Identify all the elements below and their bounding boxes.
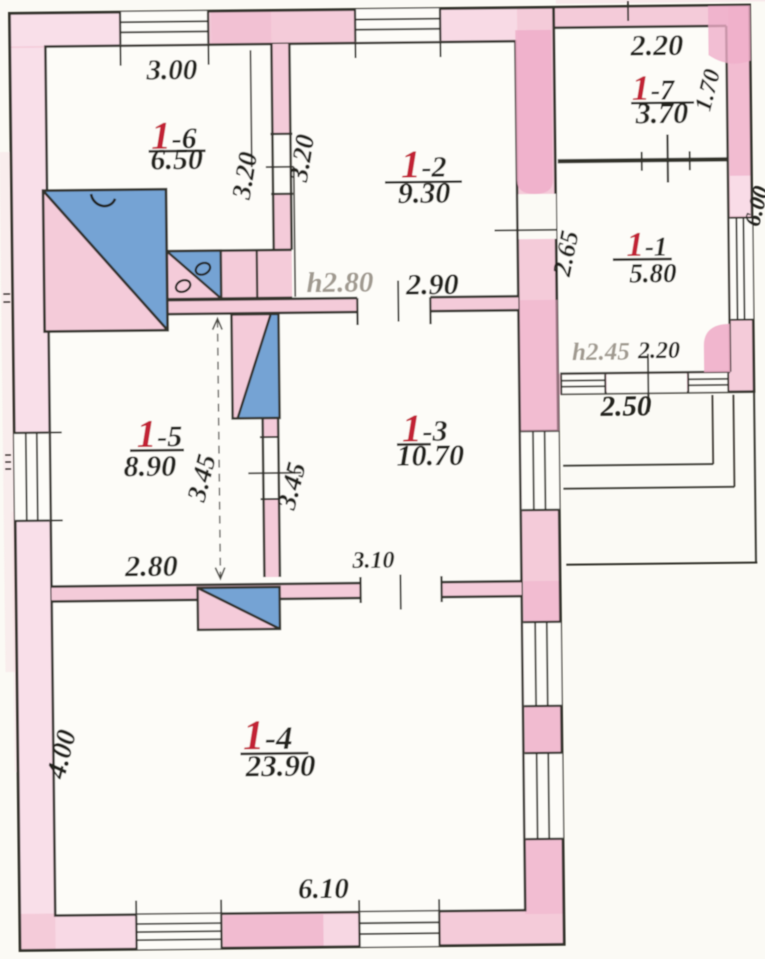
svg-text:2.20: 2.20 [637,338,680,364]
svg-text:3.00: 3.00 [145,54,197,87]
svg-text:10.70: 10.70 [396,439,464,473]
svg-text:6.10: 6.10 [298,873,349,906]
svg-text:23.90: 23.90 [244,748,315,784]
svg-text:2.80: 2.80 [124,550,178,584]
svg-text:h2.80: h2.80 [306,267,373,300]
svg-text:9.30: 9.30 [398,177,451,211]
svg-text:2.50: 2.50 [599,390,651,423]
svg-text:3.10: 3.10 [351,548,394,574]
svg-text:2.20: 2.20 [629,29,683,63]
svg-text:3.70: 3.70 [634,97,688,131]
svg-text:8.90: 8.90 [124,450,177,484]
svg-text:h2.45: h2.45 [572,339,630,367]
svg-text:6.50: 6.50 [150,143,203,177]
svg-text:5.80: 5.80 [629,258,677,289]
svg-text:2.90: 2.90 [405,268,459,302]
